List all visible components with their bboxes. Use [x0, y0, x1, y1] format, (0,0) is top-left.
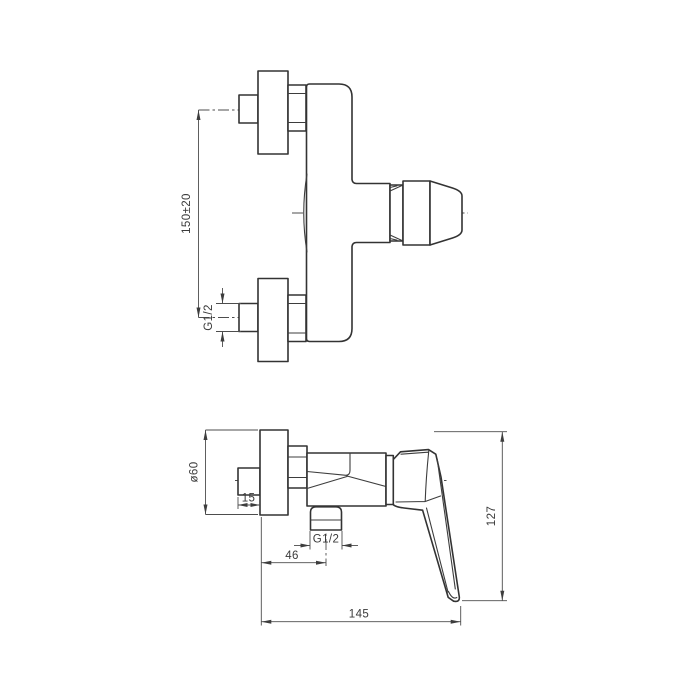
front-handle-base — [403, 181, 430, 245]
dim-arrow-right — [316, 561, 326, 565]
dim-arrow-down — [204, 505, 208, 515]
drawing-canvas: 150±20 G1/2 — [0, 0, 700, 700]
dim-arrow-up — [204, 430, 208, 440]
dim-arrow-up — [500, 432, 504, 442]
front-bottom-supply-pipe — [239, 304, 258, 332]
dim-arrow-down — [197, 308, 201, 318]
dim-arrow-left — [261, 620, 271, 624]
front-bottom-hex-nut — [288, 295, 306, 342]
dim-arrow-up — [221, 332, 225, 342]
front-top-supply-pipe — [239, 95, 258, 123]
front-handle-cap — [430, 181, 462, 245]
dim-label-mount-spacing: 150±20 — [181, 193, 193, 234]
side-view: ø60 15 G1/2 46 — [189, 430, 508, 626]
dim-label-overall-length: 145 — [349, 609, 369, 621]
dim-arrow-right — [451, 620, 461, 624]
side-hose-outlet — [311, 507, 342, 530]
dim-label-wall-offset: 15 — [242, 493, 256, 505]
side-cartridge-ring — [386, 456, 393, 505]
dim-label-flange-diameter: ø60 — [189, 461, 201, 482]
dim-label-outlet-thread: G1/2 — [313, 534, 340, 546]
front-top-hex-nut — [288, 85, 306, 131]
dim-arrow-right-in — [301, 544, 311, 548]
side-hex-nut — [288, 446, 307, 488]
side-supply-pipe — [238, 468, 260, 495]
front-bottom-flange — [258, 279, 288, 362]
side-flange — [260, 430, 288, 515]
dim-arrow-left-in — [342, 544, 352, 548]
front-cartridge-ring — [390, 185, 403, 241]
dim-arrow-left — [261, 561, 271, 565]
dim-arrow-down — [500, 591, 504, 601]
front-top-flange — [258, 71, 288, 154]
dim-arrow-up — [197, 110, 201, 120]
dim-arrow-down — [221, 294, 225, 304]
technical-drawing: 150±20 G1/2 — [0, 0, 700, 700]
dim-mount-spacing: 150±20 — [181, 110, 201, 318]
dim-outlet-offset: 46 — [261, 550, 326, 565]
side-valve-body — [307, 453, 386, 506]
dim-label-outlet-offset: 46 — [285, 550, 299, 562]
front-body-plate — [307, 84, 391, 342]
dim-label-overall-height: 127 — [486, 506, 498, 526]
front-view: 150±20 G1/2 — [181, 71, 468, 362]
dim-label-inlet-thread: G1/2 — [203, 304, 215, 331]
